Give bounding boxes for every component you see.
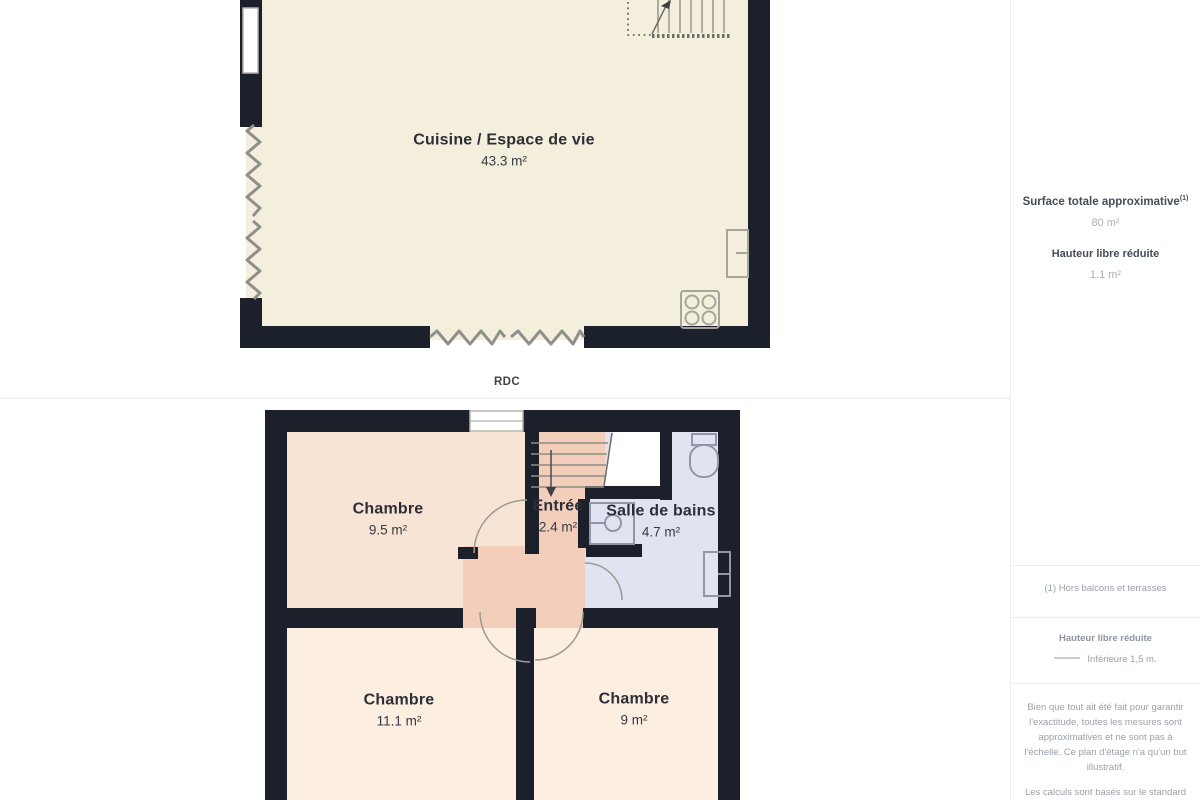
info-sidebar: Surface totale approximative(1) 80 m² Ha… (1010, 0, 1200, 800)
floor-tag-rdc: RDC (494, 376, 520, 388)
room-label-salle-de-bains: Salle de bains 4.7 m² (606, 502, 716, 543)
room-label-cuisine: Cuisine / Espace de vie 43.3 m² (413, 131, 595, 172)
reduced-height-value: 1.1 m² (1019, 269, 1192, 282)
room-label-chambre-3: Chambre 9 m² (599, 690, 670, 731)
surface-total-title: Surface totale approximative(1) (1019, 192, 1192, 209)
window-icon (243, 8, 258, 73)
sidebar-divider (1012, 617, 1200, 618)
legend-row: Inférieure 1,5 m. (1011, 654, 1200, 665)
surface-total-value: 80 m² (1019, 217, 1192, 230)
stair-void (605, 432, 660, 486)
floorplan-etage (265, 410, 740, 800)
disclaimer-text: Bien que tout ait été fait pour garantir… (1011, 700, 1200, 775)
reduced-height-line-icon (1054, 657, 1080, 659)
footnote-marker: (1) (1180, 195, 1189, 202)
floorplan-rdc (240, 0, 770, 348)
room-label-entree: Entrée 2.4 m² (533, 497, 584, 538)
floorplan-page: Cuisine / Espace de vie 43.3 m² RDC Cham… (0, 0, 1200, 800)
legend-title: Hauteur libre réduite (1011, 633, 1200, 644)
staircase-icon (531, 433, 612, 497)
window-icon (470, 411, 523, 431)
sidebar-divider (1012, 565, 1200, 566)
footnote-text: (1) Hors balcons et terrasses (1011, 581, 1200, 596)
floorplan-drawing (0, 0, 1010, 800)
disclaimer-text-2: Les calculs sont basés sur le standard (1011, 785, 1200, 800)
room-label-chambre-1: Chambre 9.5 m² (353, 500, 424, 541)
reduced-height-title: Hauteur libre réduite (1019, 247, 1192, 261)
sidebar-divider (1012, 683, 1200, 684)
floorplan-panel: Cuisine / Espace de vie 43.3 m² RDC Cham… (0, 0, 1010, 800)
floors-divider (0, 397, 1010, 399)
room-label-chambre-2: Chambre 11.1 m² (364, 691, 435, 732)
surface-summary: Surface totale approximative(1) 80 m² Ha… (1011, 192, 1200, 282)
legend-item-label: Inférieure 1,5 m. (1087, 654, 1156, 665)
